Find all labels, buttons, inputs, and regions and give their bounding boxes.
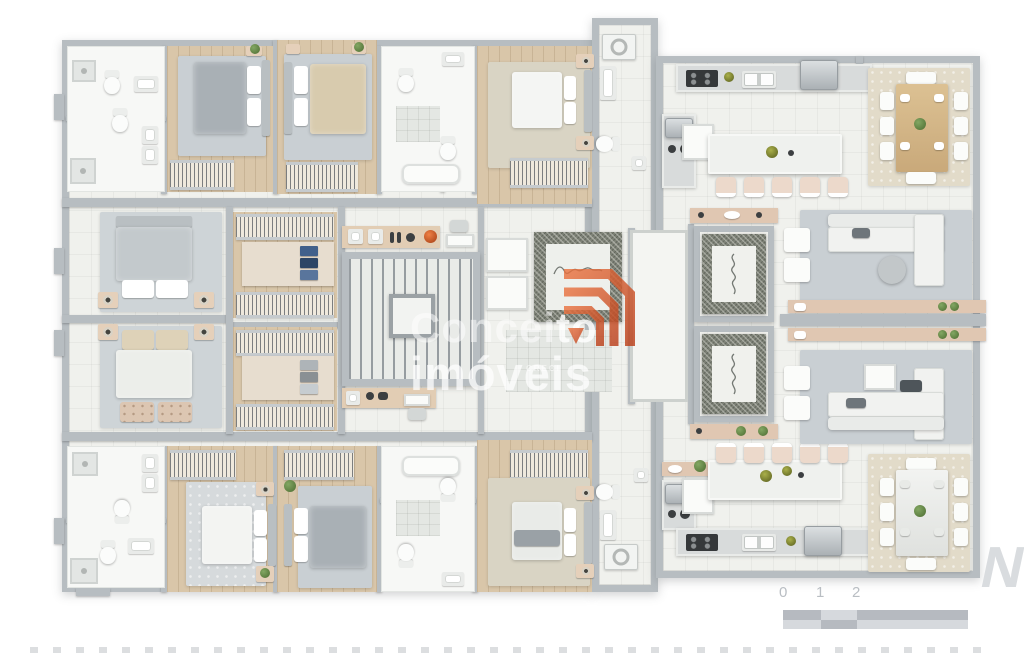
plant — [736, 426, 746, 436]
scale-segment — [821, 610, 857, 620]
king-bed — [194, 62, 246, 134]
place-setting — [934, 528, 944, 536]
bed-pillow — [156, 330, 188, 350]
dining-chair — [954, 503, 968, 521]
bar-stool — [800, 177, 820, 197]
dining-chair — [906, 72, 936, 84]
dining-chair — [880, 478, 894, 496]
place-setting — [900, 94, 910, 102]
table-centerpiece-plant — [914, 505, 926, 517]
scale-label-2: 2 — [852, 584, 860, 601]
plant — [938, 302, 947, 311]
fridge — [804, 526, 842, 556]
wardrobe-rail — [170, 160, 234, 190]
closet-island — [242, 356, 334, 400]
scale-segment — [857, 620, 968, 629]
bed-pillow — [254, 538, 267, 562]
bar-stool — [716, 443, 736, 463]
bed-headboard — [284, 62, 292, 134]
bed-headboard — [268, 504, 276, 566]
decor-bowl — [782, 466, 792, 476]
vanity-sink — [632, 156, 646, 170]
vanity-sink — [142, 454, 158, 472]
table-lamp — [582, 489, 590, 497]
cooktop — [686, 534, 718, 551]
bar-stool — [716, 177, 736, 197]
bed-headboard — [584, 502, 592, 564]
plant — [938, 330, 947, 339]
fruit-bowl — [786, 536, 796, 546]
throw-cushion — [900, 380, 922, 392]
king-bed — [310, 64, 366, 134]
bed-pillow — [122, 330, 154, 350]
wardrobe-rail — [284, 450, 354, 480]
vanity-sink — [346, 391, 360, 405]
shower-room-floor — [396, 500, 440, 536]
bar-stool — [744, 443, 764, 463]
bed-pillow — [564, 76, 576, 100]
folded-clothes — [300, 384, 318, 394]
facade-pillar — [54, 248, 64, 274]
desk-chair — [408, 408, 426, 420]
dining-chair — [906, 558, 936, 570]
wardrobe-rail — [510, 450, 588, 480]
table-lamp — [582, 57, 590, 65]
folded-clothes — [300, 246, 318, 256]
folded-clothes — [300, 360, 318, 370]
toiletry-bottle — [390, 232, 394, 243]
sofa-back — [828, 417, 944, 430]
script-decor — [726, 252, 742, 296]
scale-label-1: 1 — [816, 584, 824, 601]
plant — [284, 480, 296, 492]
scale-bar — [783, 610, 968, 629]
folded-clothes — [300, 270, 318, 280]
toilet — [440, 478, 456, 502]
facade-step — [76, 588, 110, 596]
dining-chair — [880, 92, 894, 110]
toilet — [112, 108, 128, 132]
kitchen-island — [708, 460, 842, 500]
shower — [72, 60, 96, 82]
bar-stool — [772, 443, 792, 463]
table-lamp — [199, 295, 209, 305]
bed-pillow — [294, 536, 308, 562]
wardrobe-rail — [510, 158, 588, 188]
place-setting — [934, 142, 944, 150]
toilet — [596, 484, 620, 500]
bed-pillow — [254, 510, 267, 536]
plant — [758, 426, 768, 436]
bed-pillow — [564, 102, 576, 124]
place-setting — [934, 94, 944, 102]
shaft-door — [486, 238, 528, 272]
orange-decor-bowl — [424, 230, 437, 243]
fruit-bowl — [724, 72, 734, 82]
cooktop — [686, 70, 718, 87]
laundry-sink — [600, 66, 616, 100]
king-bed — [512, 72, 562, 128]
toilet — [398, 68, 414, 92]
king-bed — [116, 350, 192, 398]
master-divider-wall — [62, 315, 230, 323]
desk — [446, 234, 474, 247]
bed-pillow — [294, 66, 308, 94]
partition-wall — [226, 207, 233, 434]
north-letter: N — [975, 534, 1024, 601]
throw-cushion — [846, 398, 866, 408]
bed-pillow — [247, 66, 261, 94]
wardrobe-rail — [236, 404, 334, 430]
decor-item — [698, 212, 704, 218]
foot-bench — [120, 402, 154, 422]
fridge — [800, 60, 838, 90]
watermark-subtext: CRECI — [526, 364, 561, 373]
facade-pillar — [54, 518, 64, 544]
coffee-maker — [668, 145, 676, 153]
table-lamp — [582, 139, 590, 147]
armchair — [784, 228, 810, 252]
wardrobe-rail — [170, 450, 236, 480]
closet-island — [242, 242, 334, 286]
sofa-chaise — [914, 214, 944, 286]
bed-pillow — [156, 280, 188, 298]
decor-bowl — [406, 233, 415, 242]
decor-object — [794, 331, 806, 339]
dining-chair — [954, 528, 968, 546]
vanity-sink — [142, 146, 158, 164]
wardrobe-rail — [236, 214, 334, 240]
scale-label-0: 0 — [779, 584, 787, 601]
round-ottoman — [878, 256, 906, 284]
decor-tray — [724, 211, 740, 219]
conceito-logo-mark-icon — [556, 266, 660, 350]
coffee-maker — [668, 510, 676, 518]
double-sink — [742, 71, 776, 88]
scale-segment — [783, 610, 821, 620]
king-bed — [202, 506, 252, 564]
decor-item — [756, 212, 762, 218]
bar-stool — [828, 177, 848, 197]
vanity-sink — [442, 572, 464, 586]
dining-chair — [954, 92, 968, 110]
square-ottoman — [864, 364, 896, 390]
nightstand — [286, 44, 300, 54]
dining-chair — [954, 117, 968, 135]
armchair — [784, 366, 810, 390]
bed-pillow — [564, 534, 576, 556]
scale-segment — [783, 620, 821, 629]
toilet — [440, 136, 456, 160]
toilet — [398, 544, 414, 568]
table-lamp — [261, 485, 270, 494]
folded-clothes — [300, 258, 318, 268]
bed-headboard — [284, 504, 292, 566]
desk-chair — [450, 220, 468, 232]
vanity-sink — [442, 52, 464, 66]
decor-item — [696, 428, 702, 434]
toiletry-bottle — [397, 232, 401, 243]
bottom-crop-marks — [30, 647, 994, 653]
place-setting — [900, 528, 910, 536]
vanity-sink — [142, 126, 158, 144]
bed-throw — [514, 530, 560, 546]
shower — [70, 158, 96, 184]
decor-bowl — [766, 146, 778, 158]
vanity-sink — [134, 76, 158, 92]
plant — [950, 330, 959, 339]
bed-pillow — [294, 98, 308, 126]
watermark-brand-light: Concei — [410, 304, 556, 351]
table-lamp — [199, 327, 209, 337]
decor-item — [366, 392, 374, 400]
plant — [250, 44, 260, 54]
table-lamp — [103, 295, 113, 305]
bed-pillow — [294, 508, 308, 534]
vanity-sink — [634, 468, 648, 482]
laundry-sink — [600, 510, 616, 540]
vanity-sink — [348, 229, 363, 244]
vanity-sink — [128, 538, 154, 554]
toilet — [100, 540, 116, 564]
bathtub — [402, 456, 460, 476]
scale-segment — [857, 610, 968, 620]
facade-pillar — [54, 94, 64, 120]
shower — [72, 452, 98, 476]
dining-chair — [880, 528, 894, 546]
folded-clothes — [300, 372, 318, 382]
scale-segment — [821, 620, 857, 629]
dining-chair — [880, 503, 894, 521]
living-divider-wall — [780, 314, 986, 326]
table-lamp — [103, 327, 113, 337]
decor-item — [798, 472, 804, 478]
toilet — [104, 70, 120, 94]
decor-item — [378, 392, 388, 400]
washing-machine — [604, 544, 638, 570]
shower — [70, 558, 98, 584]
shower-room-floor — [396, 106, 440, 142]
bed-headboard — [262, 60, 270, 136]
armchair — [784, 258, 810, 282]
plant — [354, 42, 364, 52]
decor-bowl — [760, 470, 772, 482]
plant — [694, 460, 706, 472]
bar-stool — [828, 443, 848, 463]
bathtub — [402, 164, 460, 184]
bar-stool — [800, 443, 820, 463]
wardrobe-rail — [236, 292, 334, 318]
wardrobe-rail — [236, 330, 334, 356]
dining-chair — [906, 458, 936, 470]
dining-chair — [906, 172, 936, 184]
bed-pillow — [247, 98, 261, 126]
bed-pillow — [122, 280, 154, 298]
decor-item — [788, 150, 794, 156]
king-bed — [116, 227, 192, 281]
plant — [950, 302, 959, 311]
plant — [260, 568, 270, 578]
table-centerpiece-plant — [914, 118, 926, 130]
place-setting — [900, 142, 910, 150]
decor-tray — [668, 465, 682, 473]
bed-headboard — [584, 70, 592, 132]
toilet — [596, 136, 620, 152]
bed-pillow — [564, 508, 576, 532]
king-bed — [310, 506, 366, 568]
logo-drop-tip — [568, 328, 584, 344]
script-decor — [726, 352, 742, 396]
throw-cushion — [852, 228, 870, 238]
decor-object — [794, 303, 806, 311]
toilet — [114, 500, 130, 524]
bar-stool — [744, 177, 764, 197]
armchair — [784, 396, 810, 420]
watermark-brand-line2: imóveis — [410, 346, 592, 401]
dining-chair — [954, 142, 968, 160]
vanity-sink — [368, 229, 383, 244]
facade-pillar — [54, 330, 64, 356]
dining-chair — [880, 117, 894, 135]
wardrobe-rail — [286, 162, 358, 192]
place-setting — [900, 480, 910, 488]
table-lamp — [582, 567, 590, 575]
foot-bench — [158, 402, 192, 422]
floor-plan-scene: Conceito imóveis CRECI 0 1 2 N — [0, 0, 1024, 656]
dining-chair — [880, 142, 894, 160]
double-sink — [742, 534, 776, 551]
dining-chair — [954, 478, 968, 496]
bar-stool — [772, 177, 792, 197]
place-setting — [934, 480, 944, 488]
bed-headboard — [116, 216, 192, 227]
washing-machine — [602, 34, 636, 60]
vanity-sink — [142, 474, 158, 492]
